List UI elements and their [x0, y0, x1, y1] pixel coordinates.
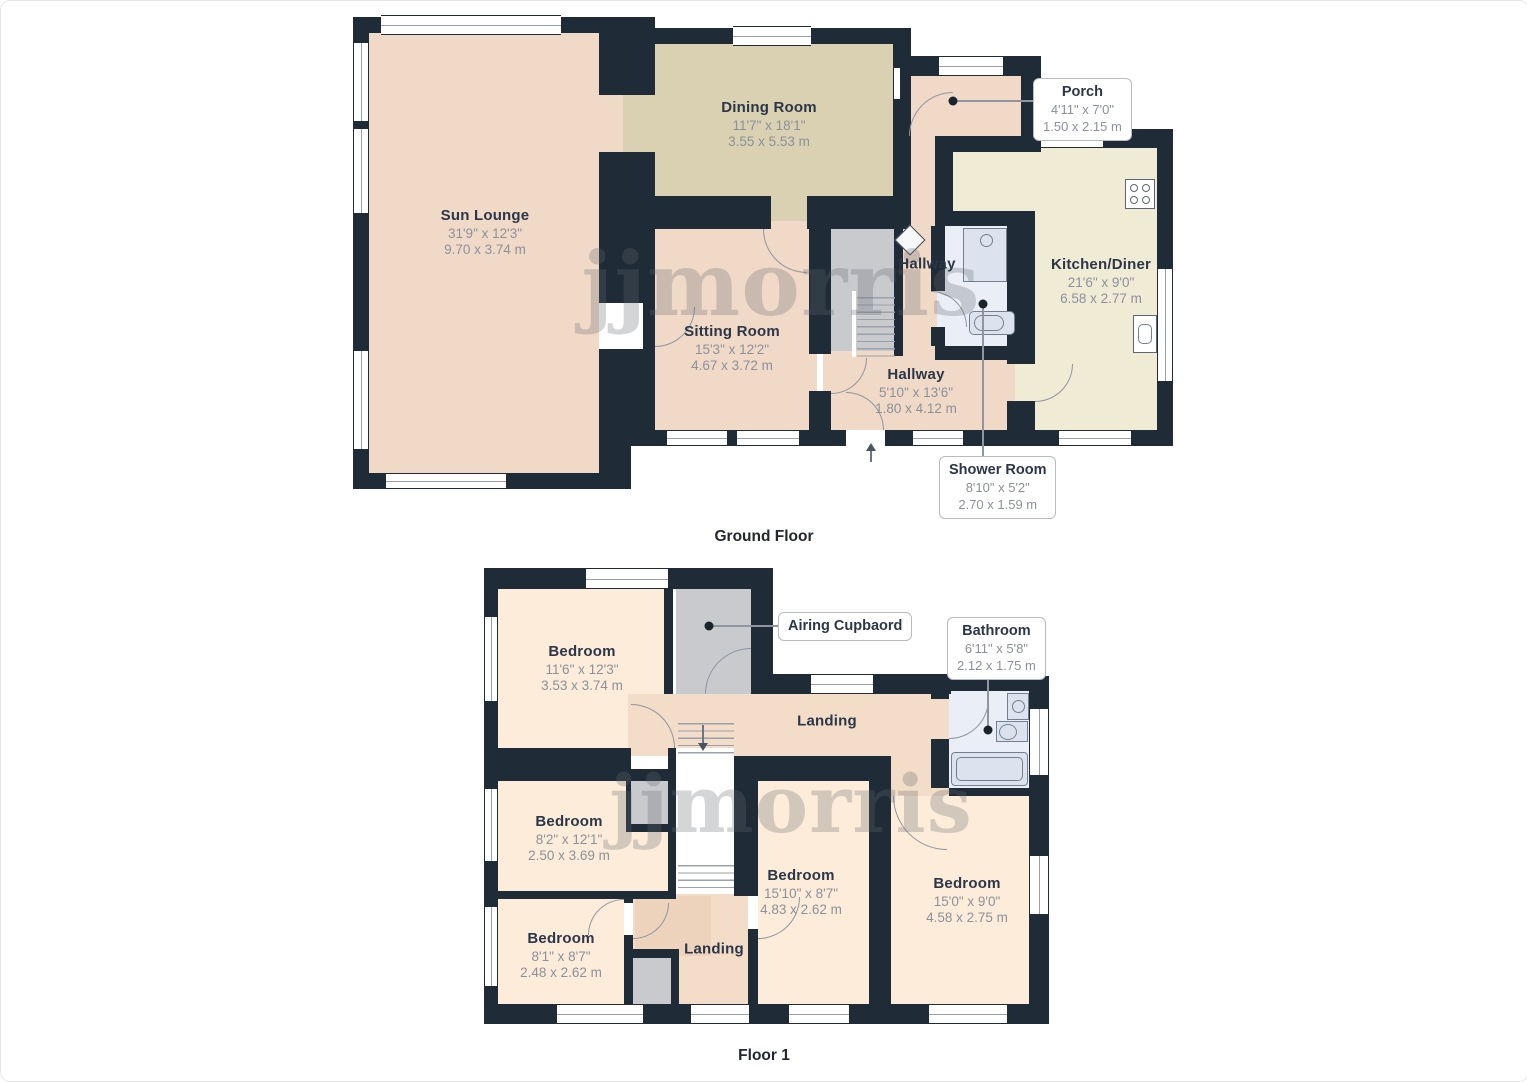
room-dimensions: 6.58 x 2.77 m	[1051, 291, 1151, 308]
callout-dimensions: 1.50 x 2.15 m	[1043, 119, 1122, 136]
room-name: Landing	[797, 713, 857, 732]
stair-arrow-stem	[702, 725, 704, 745]
callout-dimensions: 2.12 x 1.75 m	[957, 658, 1036, 675]
room-label-bedroom-3: Bedroom8'1" x 8'7"2.48 x 2.62 m	[520, 930, 602, 982]
cupboard-2	[633, 958, 671, 1004]
room-label-kitchen-diner: Kitchen/Diner21'6" x 9'0"6.58 x 2.77 m	[1051, 256, 1151, 308]
room-dimensions: 15'10" x 8'7"	[760, 886, 842, 903]
callout-airing-cupboard: Airing Cupbaord	[778, 612, 912, 641]
window	[1029, 709, 1049, 775]
window	[484, 789, 498, 861]
caption-floor-1: Floor 1	[738, 1047, 790, 1065]
window	[386, 473, 506, 489]
room-label-hallway-upper: Hallway	[898, 256, 955, 275]
callout-name: Airing Cupbaord	[788, 617, 902, 636]
wall	[1007, 401, 1035, 430]
sink-icon	[1133, 315, 1157, 353]
wall	[633, 949, 679, 958]
room-label-sitting-room: Sitting Room15'3" x 12'2"4.67 x 3.72 m	[684, 323, 780, 375]
room-dimensions: 11'6" x 12'3"	[541, 662, 623, 679]
wall	[599, 152, 655, 244]
window	[811, 674, 873, 694]
toilet-icon	[996, 721, 1028, 742]
window	[353, 351, 369, 449]
callout-dimensions: 4'11" x 7'0"	[1043, 102, 1122, 119]
room-dimensions: 15'3" x 12'2"	[684, 342, 780, 359]
callout-leader-line	[982, 304, 984, 458]
room-dimensions: 9.70 x 3.74 m	[441, 242, 530, 259]
room-landing-1	[628, 694, 949, 756]
room-name: Bedroom	[541, 643, 623, 662]
room-name: Kitchen/Diner	[1051, 256, 1151, 275]
room-dimensions: 11'7" x 18'1"	[721, 118, 817, 135]
room-dimensions: 4.58 x 2.75 m	[926, 910, 1008, 927]
window	[353, 43, 369, 121]
room-name: Sun Lounge	[441, 207, 530, 226]
window	[353, 129, 369, 213]
callout-dimensions: 6'11" x 5'8"	[957, 641, 1036, 658]
room-label-hallway: Hallway5'10" x 13'6"1.80 x 4.12 m	[875, 366, 957, 418]
room-dimensions: 3.53 x 3.74 m	[541, 678, 623, 695]
room-label-bedroom-5: Bedroom15'0" x 9'0"4.58 x 2.75 m	[926, 875, 1008, 927]
cooktop-icon	[1125, 179, 1155, 209]
callout-anchor-dot	[979, 300, 988, 309]
room-label-bedroom-2: Bedroom8'2" x 12'1"2.50 x 3.69 m	[528, 813, 610, 865]
room-dimensions: 2.48 x 2.62 m	[520, 965, 602, 982]
callout-name: Porch	[1043, 83, 1122, 102]
wall	[931, 691, 949, 699]
room-label-sun-lounge: Sun Lounge31'9" x 12'3"9.70 x 3.74 m	[441, 207, 530, 259]
room-dimensions: 4.83 x 2.62 m	[760, 902, 842, 919]
watermark-ground-floor: jjmorris	[581, 232, 980, 336]
room-dimensions: 1.80 x 4.12 m	[875, 401, 957, 418]
room-label-bedroom-1: Bedroom11'6" x 12'3"3.53 x 3.74 m	[541, 643, 623, 695]
window	[737, 430, 799, 446]
room-dimensions: 8'2" x 12'1"	[528, 832, 610, 849]
room-dimensions: 4.67 x 3.72 m	[684, 358, 780, 375]
callout-shower-room: Shower Room8'10" x 5'2"2.70 x 1.59 m	[939, 456, 1056, 519]
callout-anchor-dot	[984, 726, 993, 735]
callout-dimensions: 8'10" x 5'2"	[949, 480, 1046, 497]
room-dimensions: 15'0" x 9'0"	[926, 894, 1008, 911]
wall	[748, 929, 758, 1004]
window	[586, 568, 668, 589]
stair-down-arrow-icon	[698, 743, 708, 751]
room-dimensions: 8'1" x 8'7"	[520, 949, 602, 966]
window	[733, 26, 811, 46]
wall	[807, 196, 911, 229]
room-dimensions: 5'10" x 13'6"	[875, 385, 957, 402]
window	[894, 68, 900, 99]
wall	[809, 391, 831, 430]
wall	[624, 935, 633, 1004]
window	[381, 15, 561, 35]
watermark-floor-1: jjmorris	[609, 757, 973, 851]
wall	[935, 211, 1035, 226]
wall	[935, 346, 1023, 360]
window	[484, 617, 498, 701]
room-dimensions: 3.55 x 5.53 m	[721, 134, 817, 151]
room-name: Hallway	[898, 256, 955, 275]
room-name: Bedroom	[528, 813, 610, 832]
room-name: Sitting Room	[684, 323, 780, 342]
room-dimensions: 31'9" x 12'3"	[441, 226, 530, 243]
room-name: Landing	[684, 941, 744, 960]
window	[913, 430, 963, 446]
sink-icon	[1007, 693, 1029, 720]
room-name: Hallway	[875, 366, 957, 385]
window	[939, 56, 1003, 76]
callout-anchor-dot	[705, 622, 714, 631]
window	[929, 1004, 1007, 1024]
room-dimensions: 21'6" x 9'0"	[1051, 275, 1151, 292]
callout-leader-line	[713, 625, 778, 627]
floorplan-canvas: jjmorris jjmorris Ground Floor Floor 1 S…	[0, 0, 1527, 1082]
callout-porch: Porch4'11" x 7'0"1.50 x 2.15 m	[1033, 78, 1132, 141]
wall	[751, 568, 773, 694]
window	[1029, 856, 1049, 914]
room-name: Dining Room	[721, 99, 817, 118]
wall	[655, 196, 771, 229]
caption-ground-floor: Ground Floor	[714, 528, 813, 546]
wall	[1007, 226, 1035, 364]
wall	[624, 899, 633, 903]
wall	[671, 958, 679, 1004]
room-label-dining-room: Dining Room11'7" x 18'1"3.55 x 5.53 m	[721, 99, 817, 151]
wall	[664, 589, 673, 694]
room-dimensions: 2.50 x 3.69 m	[528, 848, 610, 865]
window	[484, 907, 498, 986]
window	[667, 430, 727, 446]
room-label-landing-1: Landing	[797, 713, 857, 732]
window	[1157, 269, 1173, 381]
stair-treads	[678, 859, 734, 893]
callout-leader-line	[957, 100, 1033, 102]
room-name: Bedroom	[760, 867, 842, 886]
window	[557, 1004, 643, 1024]
room-name: Bedroom	[520, 930, 602, 949]
window	[691, 1004, 749, 1024]
room-label-bedroom-4: Bedroom15'10" x 8'7"4.83 x 2.62 m	[760, 867, 842, 919]
callout-dimensions: 2.70 x 1.59 m	[949, 497, 1046, 514]
room-label-landing-2: Landing	[684, 941, 744, 960]
wall	[953, 136, 1041, 152]
room-name: Bedroom	[926, 875, 1008, 894]
callout-name: Shower Room	[949, 461, 1046, 480]
window	[1059, 430, 1131, 446]
callout-name: Bathroom	[957, 622, 1036, 641]
callout-anchor-dot	[949, 97, 958, 106]
entry-arrow-icon	[866, 443, 876, 451]
callout-bathroom: Bathroom6'11" x 5'8"2.12 x 1.75 m	[947, 617, 1046, 680]
window	[789, 1004, 849, 1024]
wall	[484, 891, 676, 899]
